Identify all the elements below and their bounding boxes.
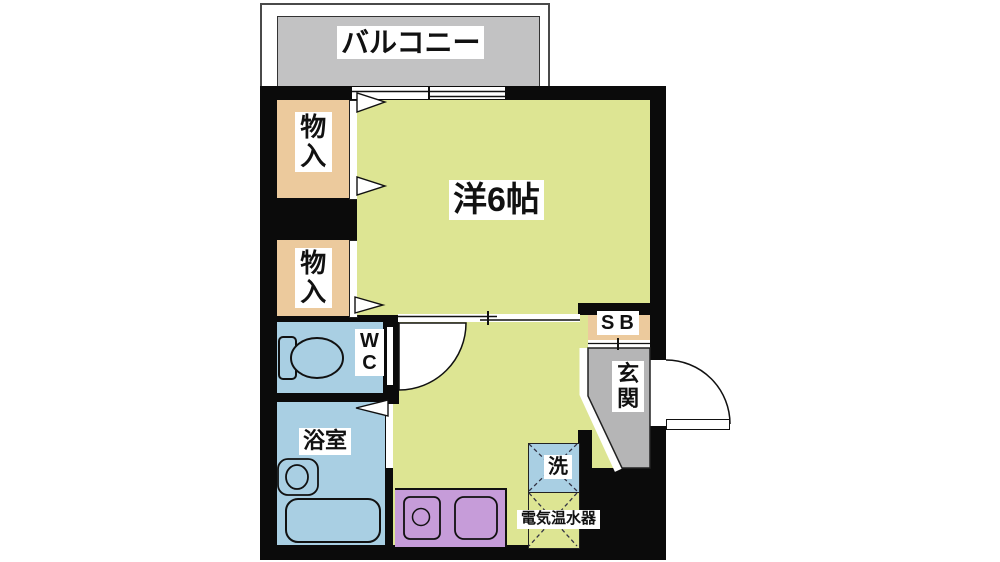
kitchen-counter	[395, 488, 507, 547]
sb-door-band	[588, 340, 650, 348]
front-door-gap	[650, 360, 666, 426]
wc-door-gap	[387, 327, 393, 385]
front-door-swing-arc	[666, 360, 730, 424]
water-heater-label: 電気温水器	[517, 510, 600, 529]
front-door-leaf	[666, 419, 730, 430]
shoe-box-label: SB	[597, 311, 639, 335]
closet-bottom-label: 物入	[295, 248, 332, 308]
balcony-window	[352, 87, 505, 99]
bathroom	[277, 402, 385, 545]
bath-door-gap	[386, 404, 393, 468]
balcony-label: バルコニー	[337, 26, 484, 59]
entrance-bottom-wall	[592, 468, 666, 560]
wc-label: WC	[355, 329, 384, 376]
floorplan-canvas: バルコニー	[0, 0, 1000, 562]
main-room-label: 洋6帖	[449, 180, 544, 220]
closet-top-label: 物入	[295, 112, 332, 172]
washing-machine-label: 洗	[544, 455, 572, 479]
entrance-label: 玄関	[612, 361, 644, 412]
bathroom-label: 浴室	[299, 428, 351, 455]
entrance-side-wall	[578, 430, 592, 560]
room-sliding-door	[398, 314, 580, 322]
